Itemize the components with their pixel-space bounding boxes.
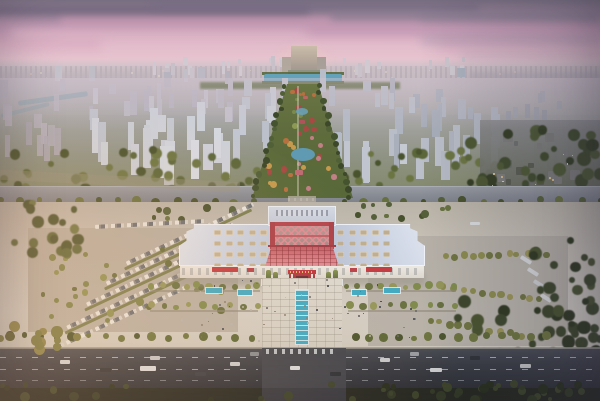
atmosphere <box>0 0 600 401</box>
vignette <box>0 0 600 401</box>
aerial-city-rendering <box>0 0 600 401</box>
